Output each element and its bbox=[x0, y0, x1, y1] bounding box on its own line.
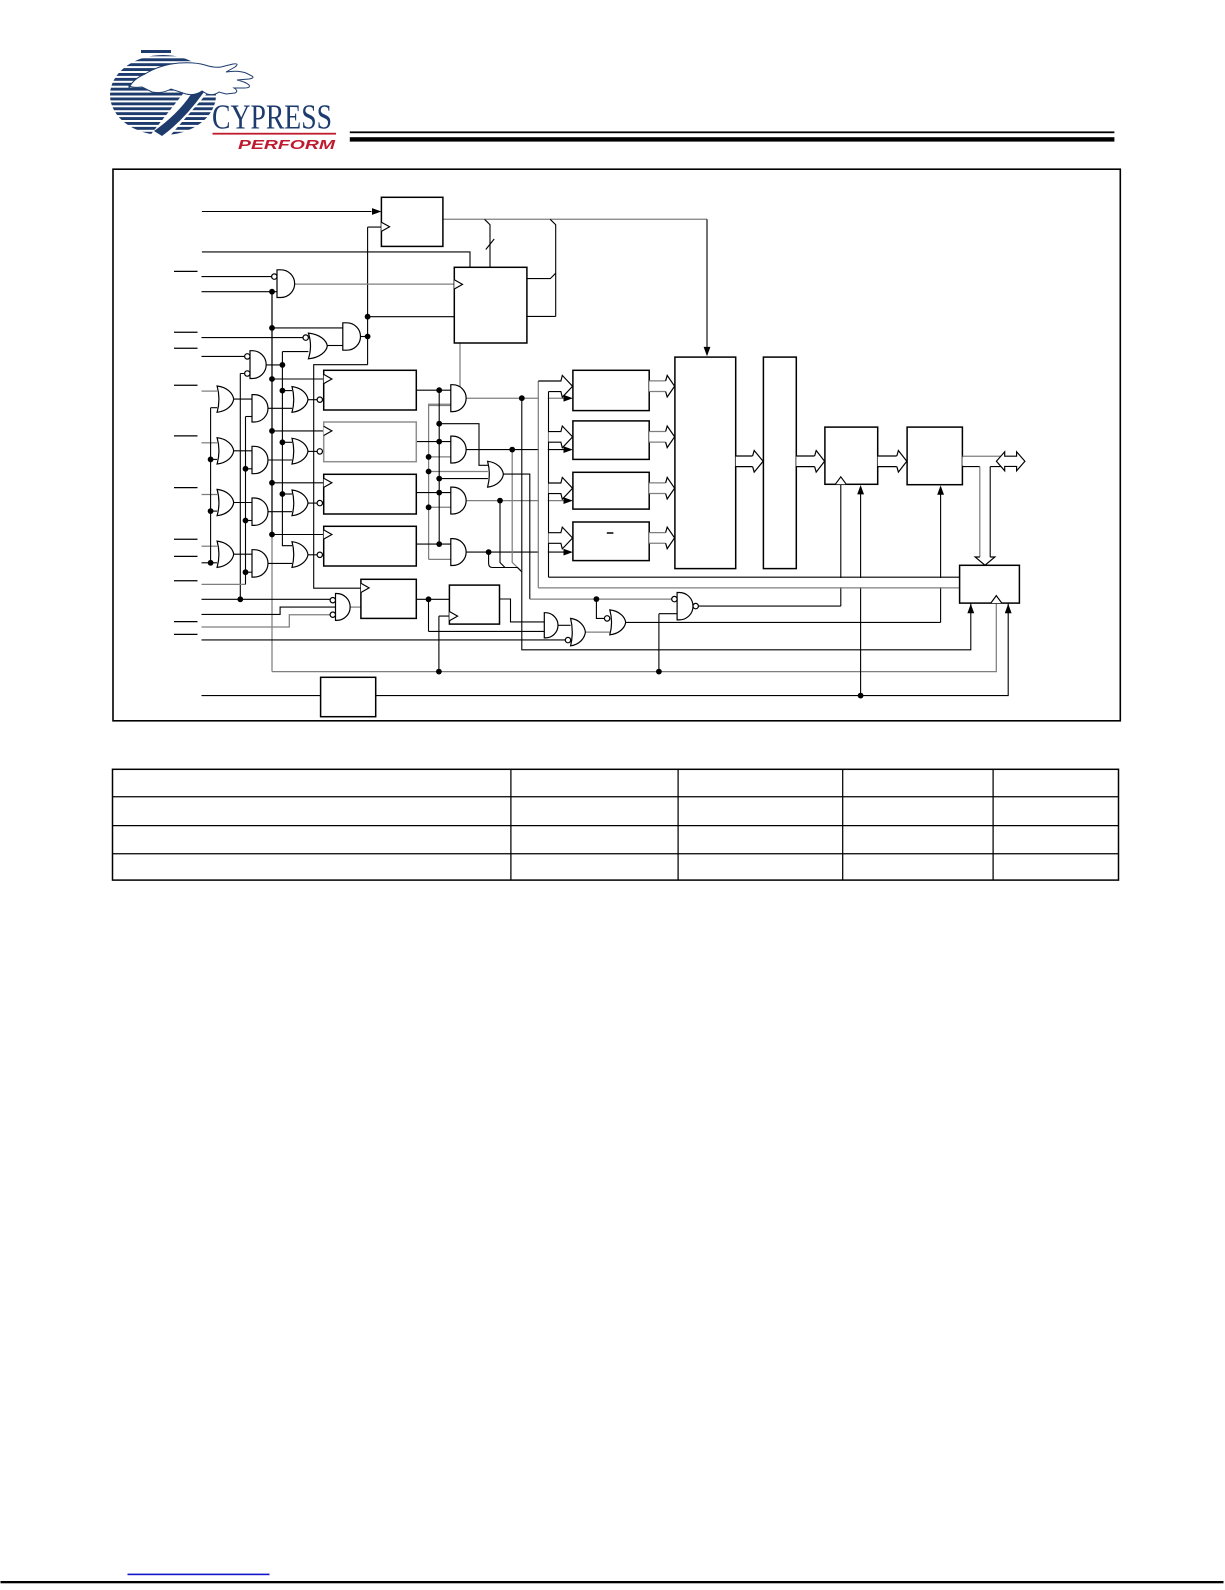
svg-text:PERFORM: PERFORM bbox=[238, 137, 337, 152]
svg-text:CYPRESS: CYPRESS bbox=[212, 99, 332, 137]
